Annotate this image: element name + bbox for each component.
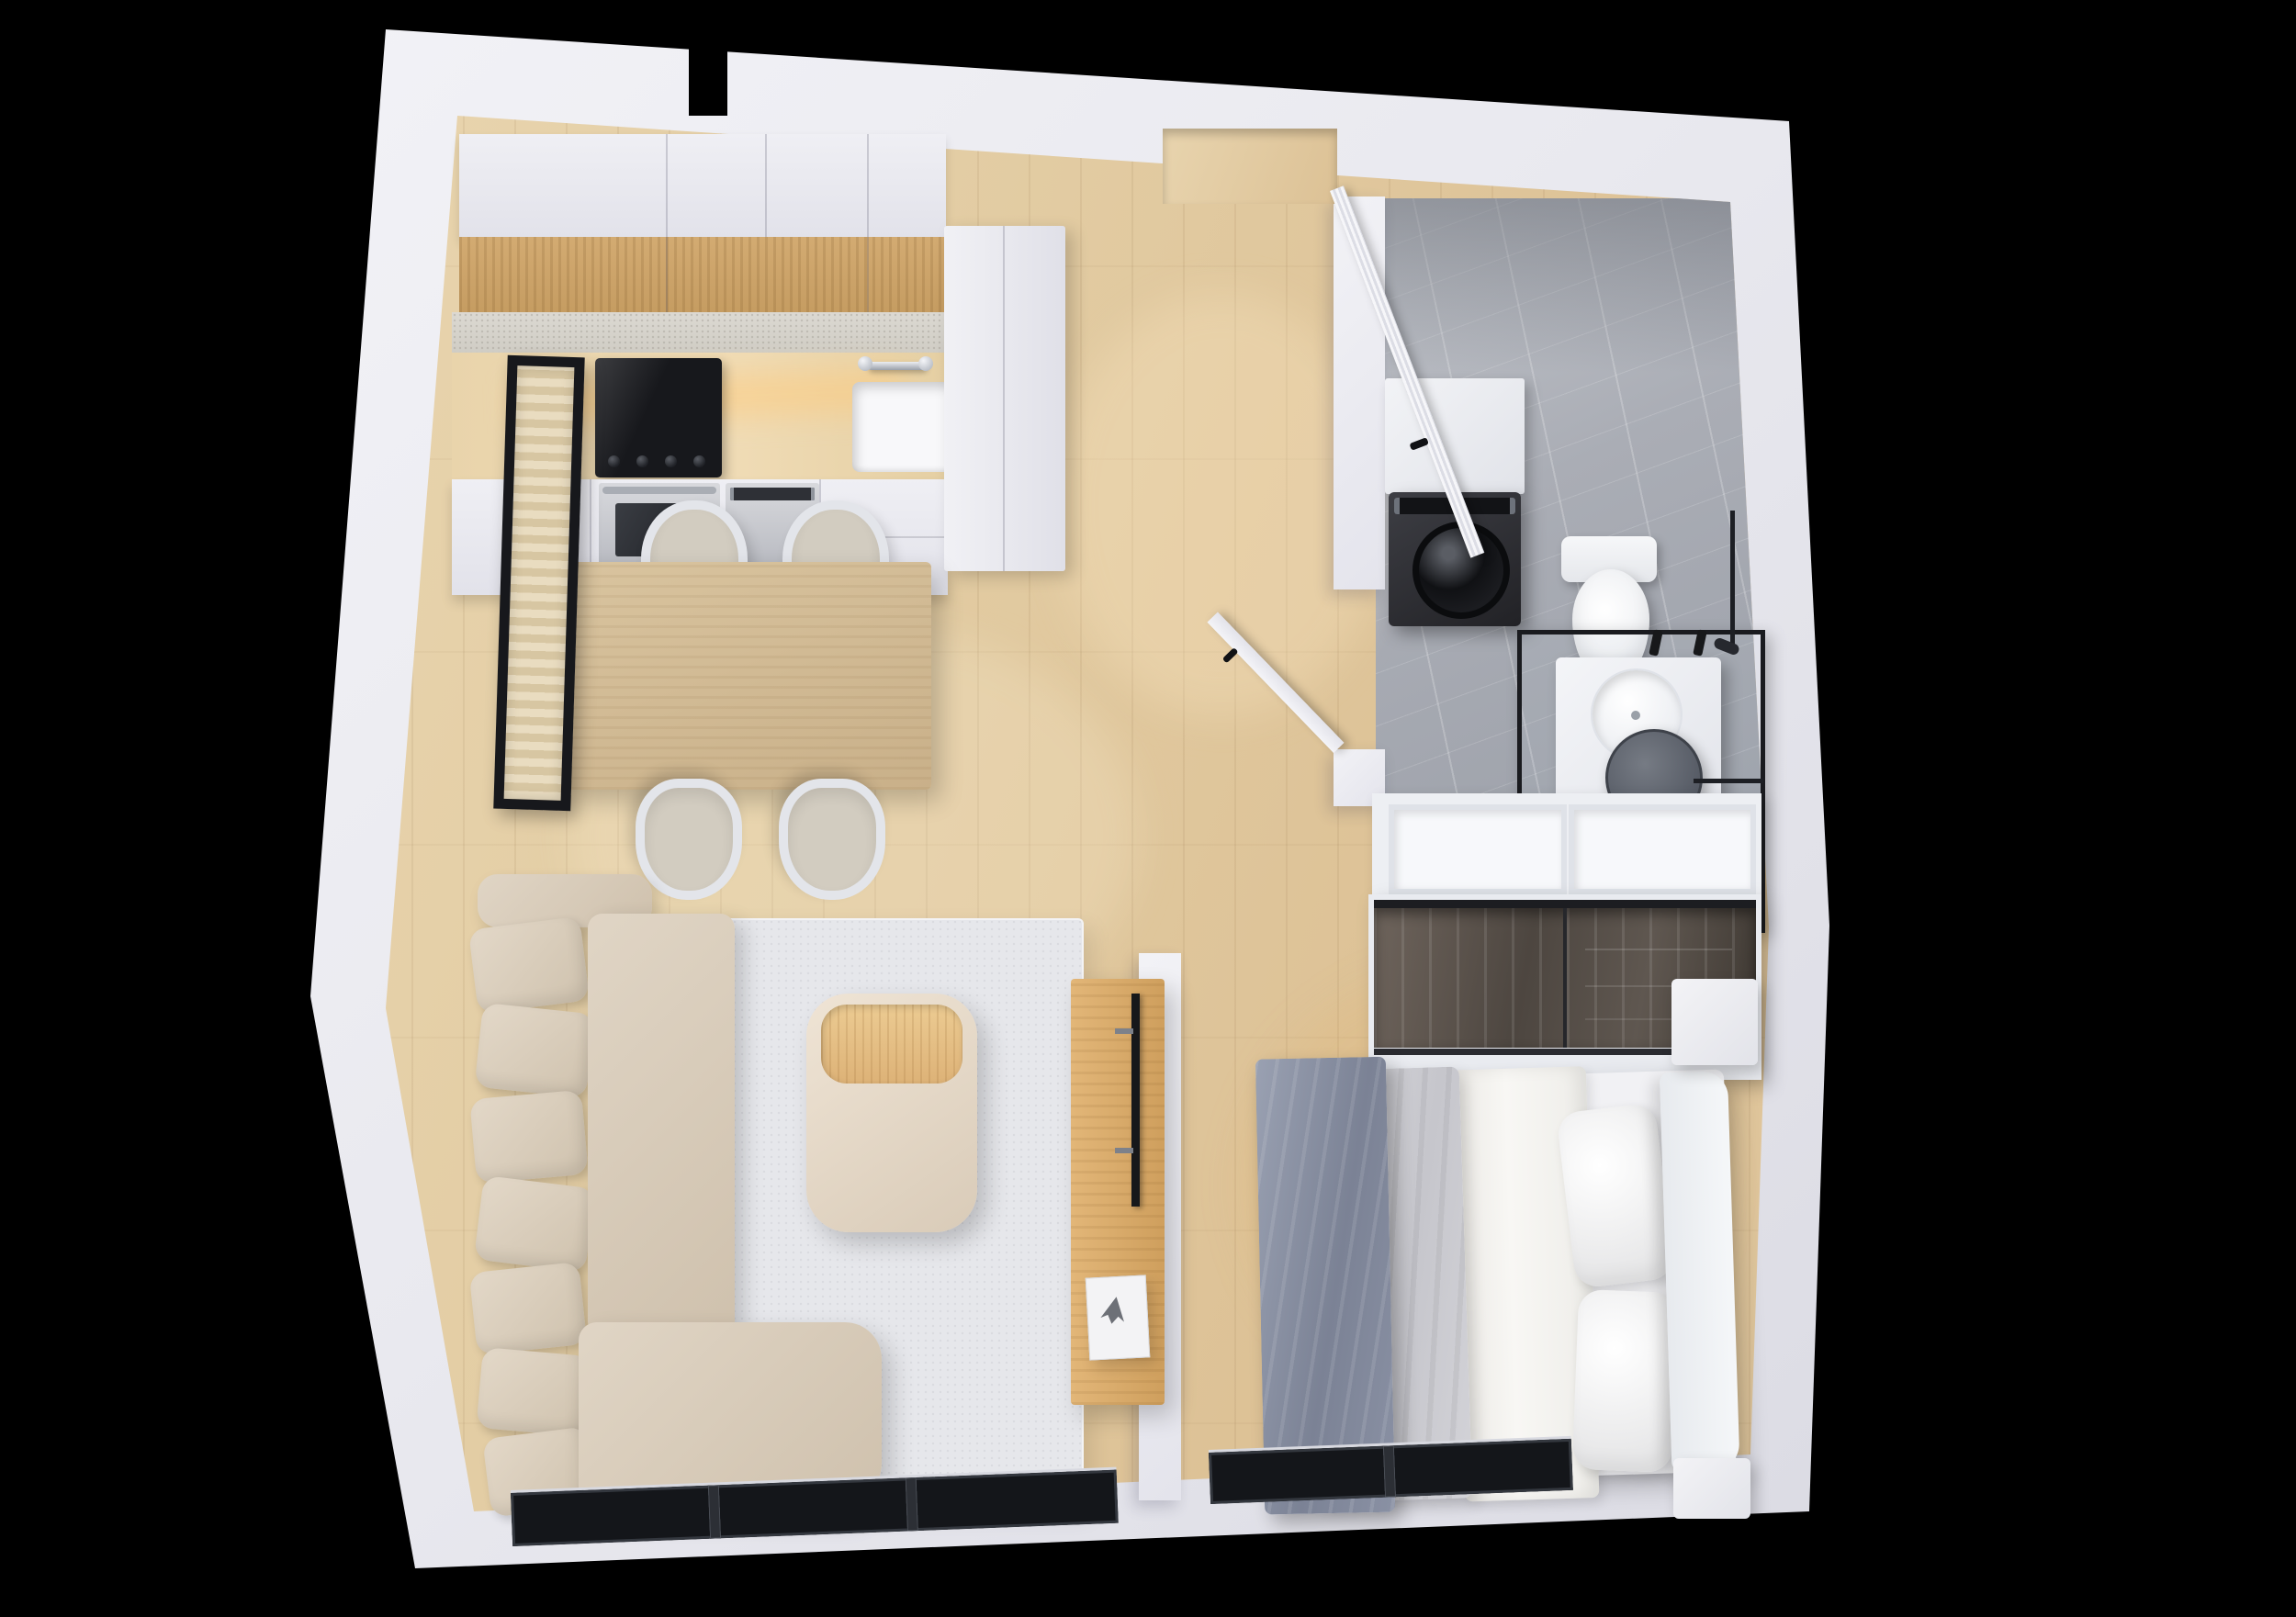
induction-cooktop: [595, 358, 722, 477]
washer-door: [1412, 522, 1510, 619]
open-shelf-unit: [1372, 793, 1761, 896]
kitchen-upper-cabinets: [459, 134, 946, 239]
top-wall-notch: [689, 28, 727, 116]
sofa-back-pillow: [469, 1262, 588, 1355]
bed-pillow: [1556, 1102, 1675, 1288]
bed-group: [1259, 1056, 1750, 1508]
towel-bar: [1694, 779, 1763, 783]
sofa-back-pillow: [475, 1003, 595, 1098]
dishwasher-panel: [730, 488, 815, 500]
sofa-back-pillow: [476, 1347, 591, 1437]
ottoman-wood-tray: [821, 1005, 962, 1084]
cooktop-knob: [608, 455, 620, 467]
entry-opening: [1163, 129, 1337, 204]
bed-pillow: [1572, 1289, 1678, 1473]
shelf-box: [1569, 804, 1756, 894]
faucet-handle-icon: [858, 356, 872, 371]
cooktop-knob: [636, 455, 648, 467]
nightstand: [1673, 1458, 1750, 1519]
decor-book-stack: [1086, 1275, 1151, 1360]
tv-mount-arm: [1115, 1148, 1133, 1153]
tall-hall-cabinet: [944, 226, 1065, 571]
sofa-back-pillow: [474, 1175, 595, 1273]
dining-table: [562, 562, 931, 790]
cooktop-knob: [665, 455, 677, 467]
nightstand: [1671, 979, 1758, 1065]
cooktop-knob: [693, 455, 705, 467]
floor-plan-stage: [0, 0, 2296, 1617]
wardrobe-top-rail: [1374, 900, 1756, 908]
kitchen-wood-cabinet-band: [459, 237, 946, 314]
ottoman-coffee-table: [806, 994, 977, 1232]
sofa-back-pillow: [469, 1090, 589, 1184]
dining-chair: [779, 779, 885, 900]
shelf-box: [1389, 804, 1567, 894]
headboard: [1660, 1071, 1740, 1471]
tv-mount-arm: [1115, 1028, 1133, 1034]
shower-rail: [1730, 511, 1735, 648]
framed-wall-art: [493, 355, 584, 811]
sofa-back-pillow: [468, 916, 590, 1014]
dining-chair: [636, 779, 742, 900]
faucet-handle-icon: [918, 356, 933, 371]
basin-drain-icon: [1631, 711, 1640, 720]
kitchen-stone-ledge: [452, 312, 948, 354]
tv-panel: [1131, 994, 1140, 1207]
kitchen-sink: [852, 382, 955, 472]
sofa-seat-section: [588, 914, 735, 1336]
